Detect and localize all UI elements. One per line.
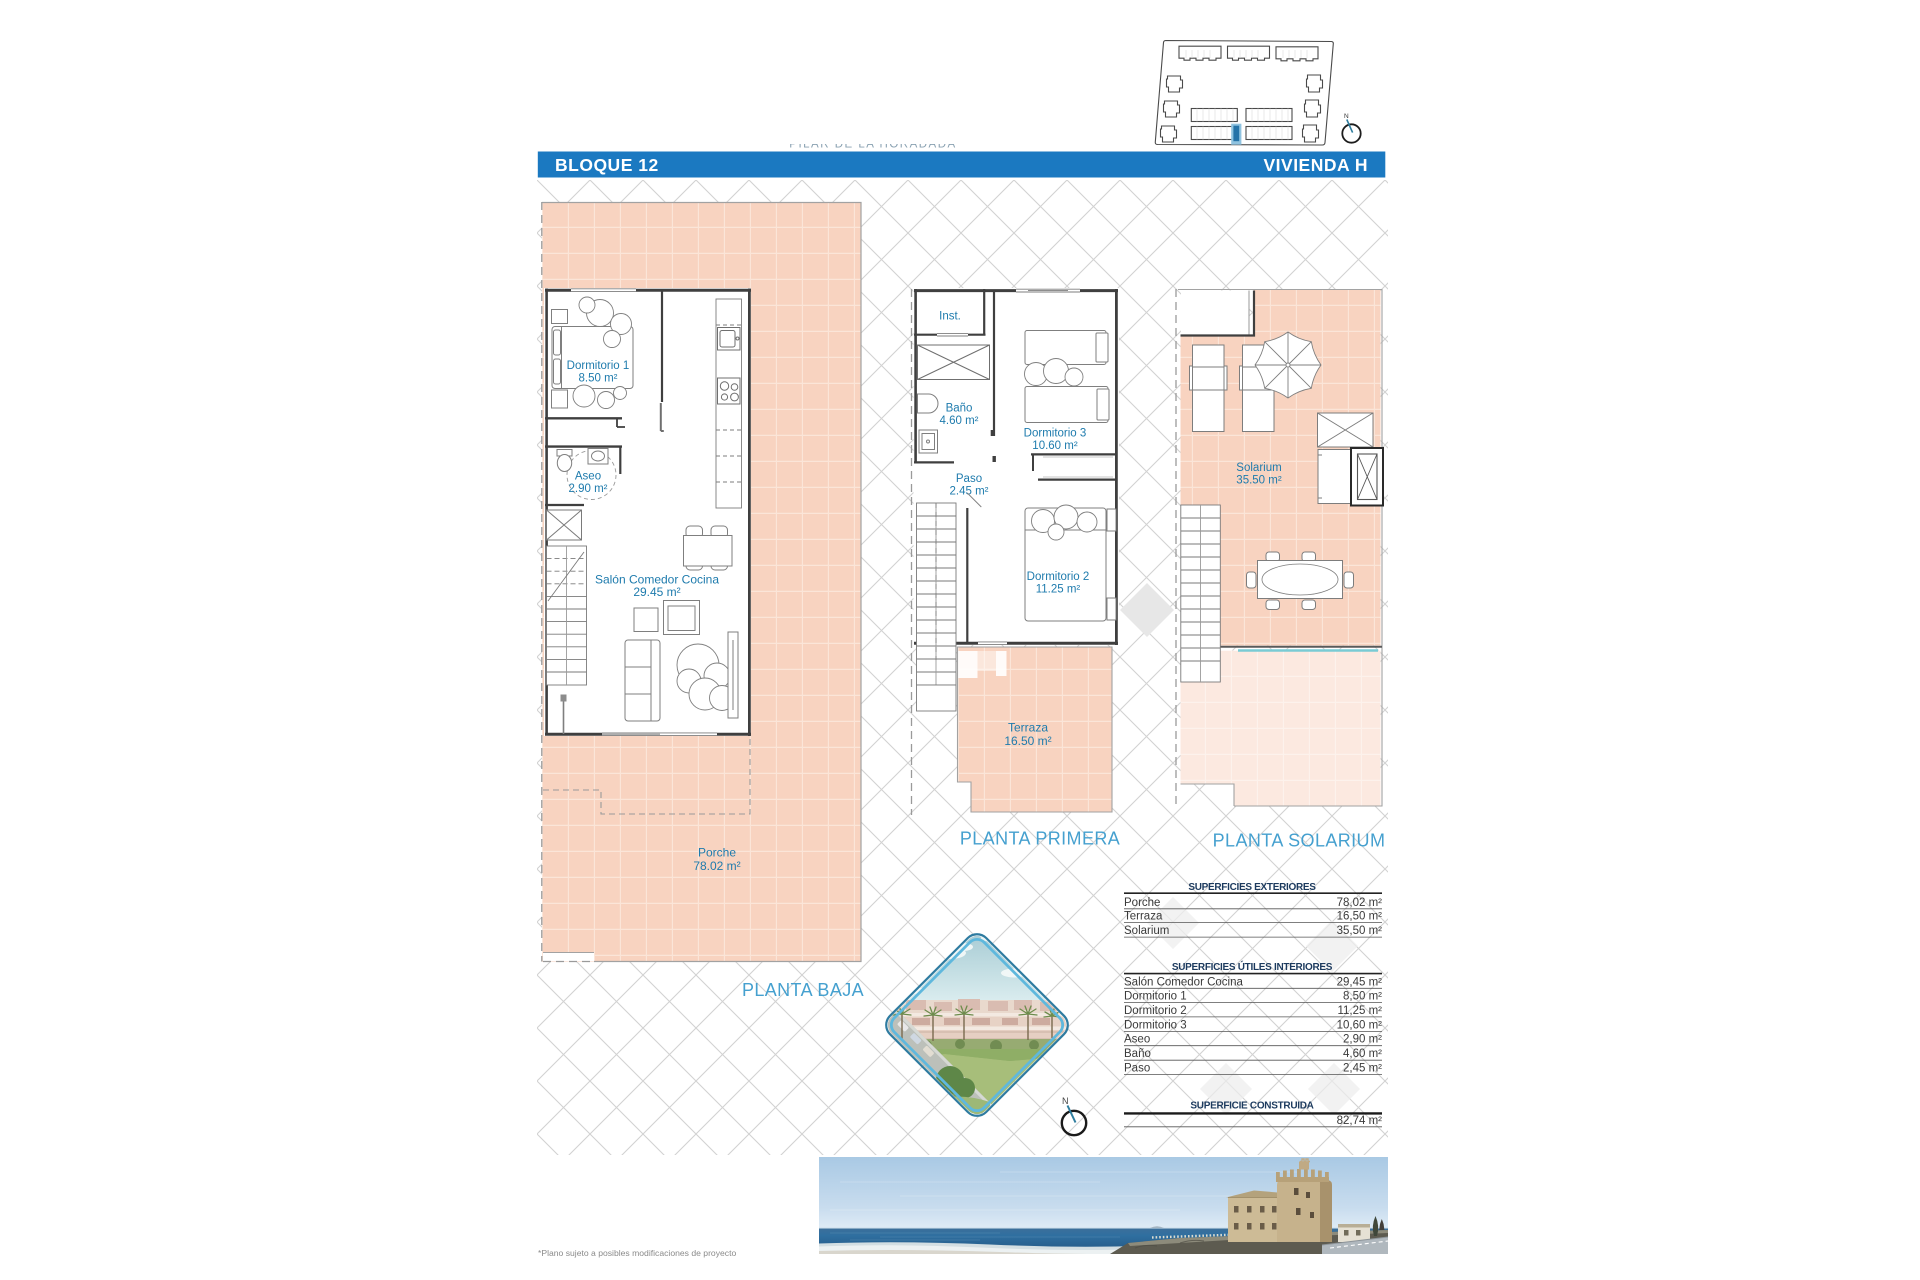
- svg-text:Terraza: Terraza: [1008, 721, 1048, 735]
- svg-text:Salón Comedor Cocina: Salón Comedor Cocina: [1124, 976, 1244, 988]
- svg-text:N: N: [1062, 1096, 1069, 1106]
- svg-text:*Plano sujeto a posibles modif: *Plano sujeto a posibles modificaciones …: [538, 1248, 736, 1258]
- svg-text:SUPERFICIES ÚTILES INTERIORES: SUPERFICIES ÚTILES INTERIORES: [1172, 960, 1333, 973]
- svg-text:SUPERFICIES EXTERIORES: SUPERFICIES EXTERIORES: [1188, 882, 1316, 893]
- svg-text:10,60 m²: 10,60 m²: [1337, 1019, 1383, 1031]
- svg-text:VIVIENDA H: VIVIENDA H: [1263, 155, 1368, 175]
- svg-text:Baño: Baño: [1124, 1048, 1151, 1060]
- svg-text:11.25 m²: 11.25 m²: [1036, 584, 1081, 596]
- svg-text:PLANTA SOLARIUM: PLANTA SOLARIUM: [1213, 831, 1386, 851]
- svg-text:PLANTA BAJA: PLANTA BAJA: [742, 980, 864, 1000]
- svg-text:2.90 m²: 2.90 m²: [569, 483, 608, 495]
- svg-text:2.45 m²: 2.45 m²: [950, 486, 989, 498]
- svg-text:2,45 m²: 2,45 m²: [1343, 1062, 1382, 1074]
- svg-text:Solarium: Solarium: [1124, 925, 1169, 937]
- svg-text:Dormitorio 2: Dormitorio 2: [1124, 1005, 1187, 1017]
- svg-text:Porche: Porche: [698, 846, 736, 860]
- svg-text:Porche: Porche: [1124, 897, 1160, 909]
- svg-text:4,60 m²: 4,60 m²: [1343, 1048, 1382, 1060]
- svg-text:35,50 m²: 35,50 m²: [1337, 925, 1383, 937]
- svg-text:2,90 m²: 2,90 m²: [1343, 1034, 1382, 1046]
- svg-text:29,45 m²: 29,45 m²: [1337, 976, 1383, 988]
- svg-text:78.02 m²: 78.02 m²: [693, 859, 740, 873]
- svg-text:Baño: Baño: [946, 403, 973, 415]
- svg-text:35.50 m²: 35.50 m²: [1236, 475, 1282, 487]
- svg-text:11,25 m²: 11,25 m²: [1337, 1005, 1382, 1017]
- svg-text:16.50 m²: 16.50 m²: [1004, 734, 1051, 748]
- svg-text:N: N: [1344, 113, 1349, 120]
- svg-text:8.50 m²: 8.50 m²: [579, 373, 618, 385]
- svg-text:Inst.: Inst.: [939, 311, 961, 323]
- svg-text:Paso: Paso: [1124, 1062, 1150, 1074]
- svg-text:82,74 m²: 82,74 m²: [1337, 1115, 1383, 1127]
- svg-text:Dormitorio 3: Dormitorio 3: [1024, 428, 1087, 440]
- svg-text:SUPERFICIE CONSTRUIDA: SUPERFICIE CONSTRUIDA: [1190, 1101, 1313, 1112]
- svg-text:Terraza: Terraza: [1124, 911, 1163, 923]
- svg-text:4.60 m²: 4.60 m²: [940, 415, 979, 427]
- svg-text:78,02 m²: 78,02 m²: [1337, 897, 1383, 909]
- svg-text:Paso: Paso: [956, 473, 982, 485]
- svg-text:PLANTA PRIMERA: PLANTA PRIMERA: [960, 829, 1120, 849]
- svg-text:Aseo: Aseo: [1124, 1034, 1150, 1046]
- svg-text:Dormitorio 3: Dormitorio 3: [1124, 1019, 1187, 1031]
- svg-text:10.60 m²: 10.60 m²: [1032, 440, 1078, 452]
- svg-text:8,50 m²: 8,50 m²: [1343, 990, 1382, 1002]
- svg-text:Dormitorio 1: Dormitorio 1: [1124, 990, 1187, 1002]
- svg-text:16,50 m²: 16,50 m²: [1337, 911, 1383, 923]
- svg-text:BLOQUE 12: BLOQUE 12: [555, 155, 659, 175]
- svg-text:Solarium: Solarium: [1236, 462, 1281, 474]
- svg-text:Dormitorio 2: Dormitorio 2: [1027, 571, 1090, 583]
- svg-text:Aseo: Aseo: [575, 471, 601, 483]
- svg-text:Dormitorio 1: Dormitorio 1: [567, 360, 630, 372]
- svg-text:29.45 m²: 29.45 m²: [633, 585, 680, 599]
